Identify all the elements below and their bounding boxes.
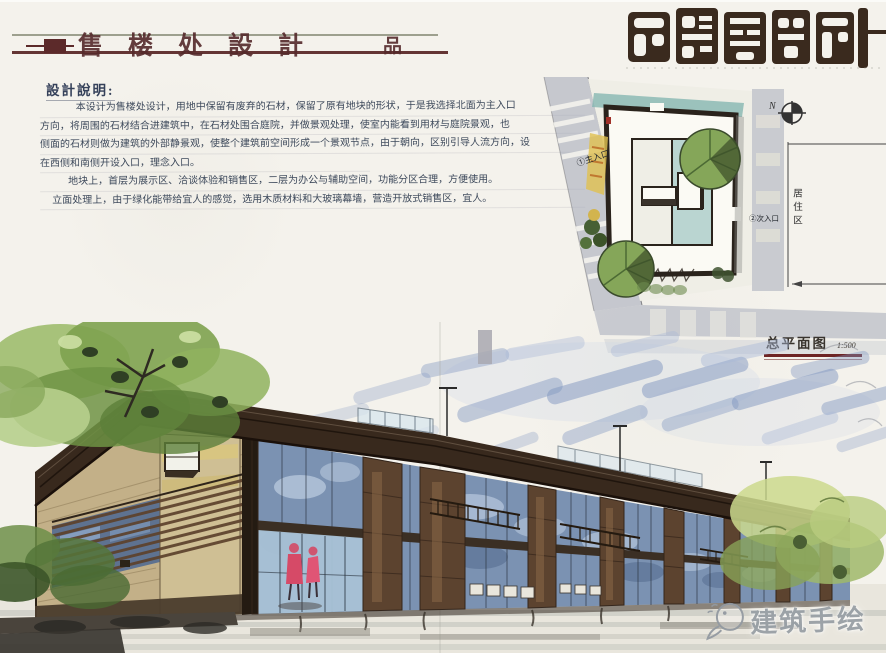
right-tree bbox=[720, 476, 886, 590]
site-plan-drawing bbox=[530, 77, 886, 362]
watermark: 建筑手绘 bbox=[703, 595, 866, 643]
title-seal-mark: 品 bbox=[383, 31, 402, 58]
corner-column bbox=[242, 434, 252, 615]
stylized-title-logo bbox=[626, 6, 886, 72]
secondary-entrance-label: ②次入口 bbox=[749, 213, 779, 224]
notes-heading: 設計說明: bbox=[46, 79, 115, 101]
notes-line: 地块上，首层为展示区、洽谈体验和销售区，二层为办公与辅助空间，功能分区合理，方便… bbox=[40, 171, 585, 192]
notes-line: 在西侧和南侧开设入口，理念入口。 bbox=[40, 153, 370, 173]
page-title: 售楼处設計 bbox=[78, 26, 328, 62]
notes-line: 方向，将周围的石材结合进建筑中，在石材处围合庭院，并做景观处理，使室内能看到用材… bbox=[40, 115, 585, 136]
watermark-brand: 建筑手绘 bbox=[749, 597, 866, 640]
north-label: N bbox=[769, 101, 776, 112]
notes-line: 本设计为售楼处设计，用地中保留有废弃的石材，保留了原有地块的形状，于是我选择北面… bbox=[40, 97, 585, 118]
notes-line: 立面处理上，由于绿化能带给宜人的感觉，选用木质材料和大玻璃幕墙，营造开放式销售区… bbox=[40, 189, 585, 210]
title-bullet-tick bbox=[26, 45, 74, 47]
left-tree bbox=[0, 322, 270, 454]
scanned-presentation-board: 售楼处設計 品 bbox=[0, 0, 886, 653]
residential-area-label: 居住区 bbox=[789, 188, 803, 229]
scan-artifact-bar bbox=[478, 330, 492, 364]
fish-logo-icon bbox=[703, 599, 750, 643]
notes-line: 侧面的石材则做为建筑的外部静景观，使整个建筑前空间形成一个景观节点，由于朝向，区… bbox=[40, 134, 585, 155]
design-notes-block: 本设计为售楼处设计，用地中保留有废弃的石材，保留了原有地块的形状，于是我选择北面… bbox=[40, 97, 585, 210]
